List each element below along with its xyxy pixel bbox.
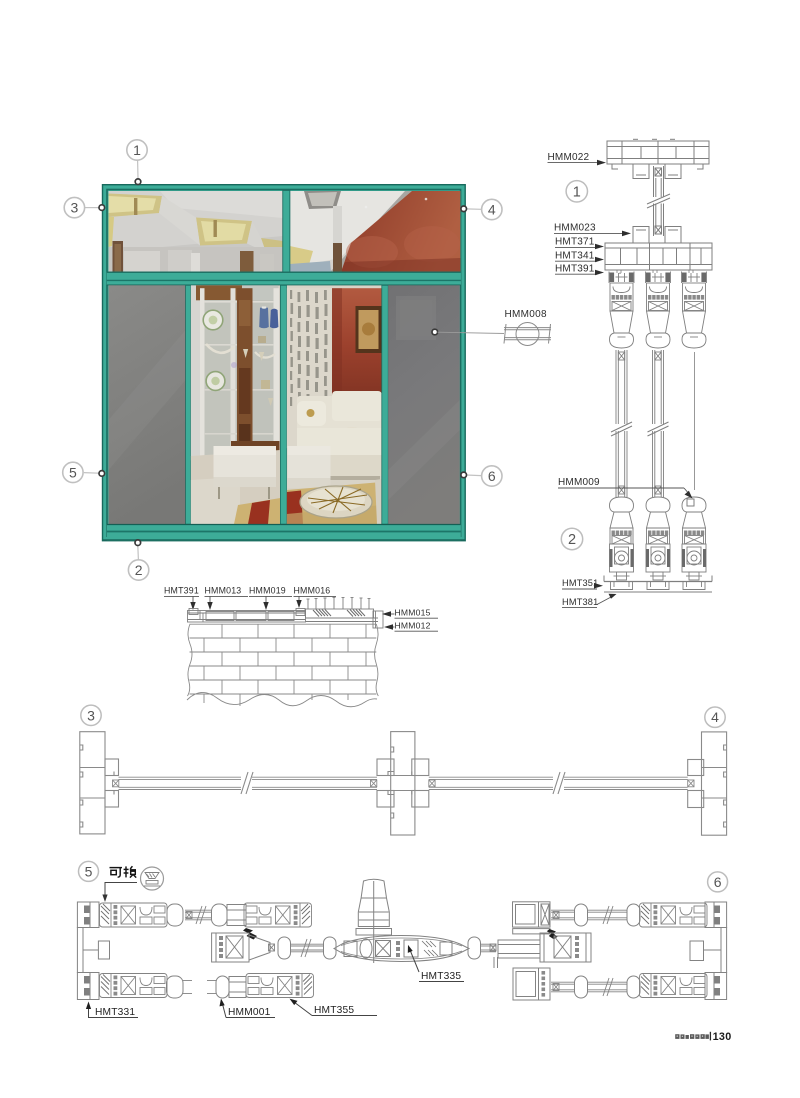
svg-text:2: 2: [568, 532, 576, 548]
svg-text:HMM019: HMM019: [249, 586, 286, 596]
svg-text:6: 6: [714, 874, 722, 890]
svg-text:5: 5: [69, 464, 77, 480]
svg-text:HMT391: HMT391: [555, 263, 595, 274]
svg-text:HMT391: HMT391: [164, 586, 199, 596]
svg-text:HMT381: HMT381: [562, 597, 598, 607]
svg-text:HMT341: HMT341: [555, 250, 595, 261]
svg-text:5: 5: [85, 863, 93, 879]
svg-text:HMM009: HMM009: [558, 477, 600, 488]
svg-text:HMT355: HMT355: [314, 1005, 354, 1016]
svg-text:HMM012: HMM012: [395, 620, 431, 630]
svg-text:2: 2: [135, 562, 143, 578]
svg-text:HMM013: HMM013: [205, 586, 242, 596]
svg-text:HMT335: HMT335: [421, 971, 461, 982]
svg-text:HMM008: HMM008: [505, 309, 548, 320]
svg-text:4: 4: [488, 202, 496, 218]
svg-text:1: 1: [573, 185, 581, 201]
svg-text:HMM015: HMM015: [395, 607, 431, 617]
svg-text:HMT331: HMT331: [95, 1007, 135, 1018]
svg-text:HMM022: HMM022: [548, 152, 590, 163]
svg-text:HMM023: HMM023: [554, 223, 596, 234]
svg-text:6: 6: [488, 468, 496, 484]
svg-text:3: 3: [87, 707, 95, 723]
svg-text:HMT371: HMT371: [555, 237, 595, 248]
svg-text:1: 1: [133, 142, 141, 158]
svg-text:130: 130: [713, 1031, 732, 1043]
svg-text:3: 3: [71, 200, 79, 216]
svg-text:HMT351: HMT351: [562, 578, 598, 588]
svg-text:4: 4: [711, 709, 719, 725]
svg-text:HMM001: HMM001: [228, 1007, 271, 1018]
svg-text:HMM016: HMM016: [294, 586, 331, 596]
